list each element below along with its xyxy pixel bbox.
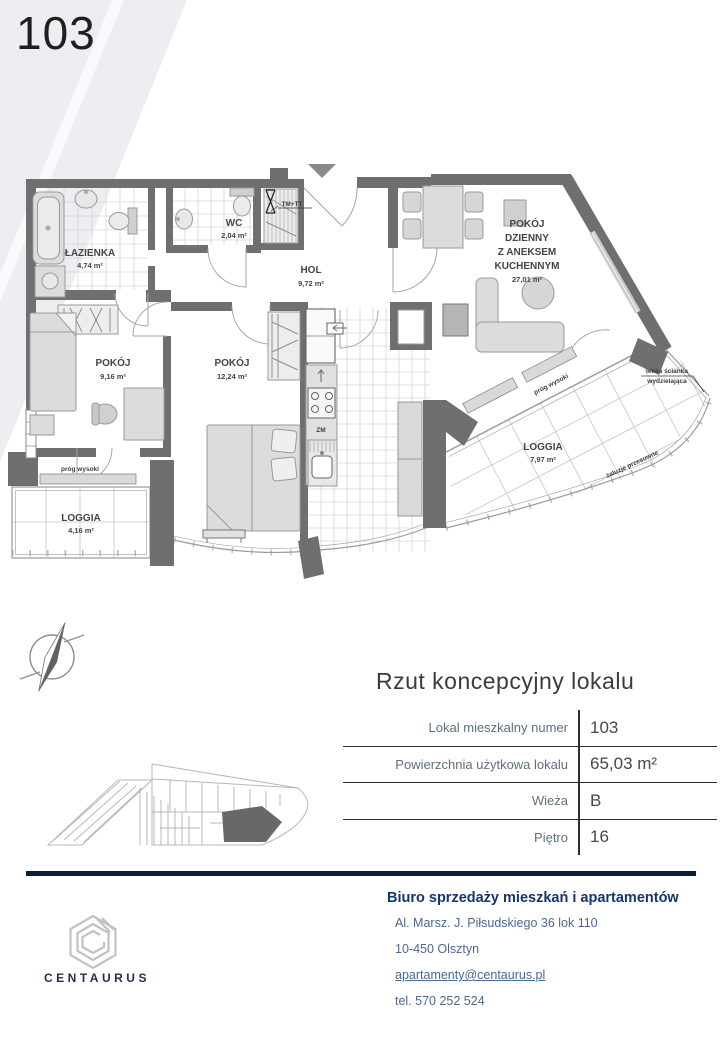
annotation-dishwasher: ZM [316, 427, 325, 434]
loggia-bench [203, 530, 245, 543]
details-table: Lokal mieszkalny numer 103 Powierzchnia … [343, 710, 717, 855]
room-area-loggia-b: 7,97 m² [530, 455, 556, 464]
room-area-living: 27,01 m² [512, 275, 543, 284]
table-row: Lokal mieszkalny numer 103 [343, 710, 717, 746]
table-row: Piętro 16 [343, 819, 717, 856]
desk-room-a [92, 388, 164, 440]
room-area-room-a: 9,16 m² [100, 372, 126, 381]
annotation-partition-1: lekka ścianka [646, 368, 688, 375]
details-title: Rzut koncepcyjny lokalu [376, 668, 706, 695]
centaurus-logo-icon [64, 912, 124, 972]
phone-number: tel. 570 252 524 [395, 994, 707, 1008]
room-label-loggia-b: LOGGIA [523, 442, 562, 453]
row-label: Powierzchnia użytkowa lokalu [343, 757, 578, 772]
room-label-bathroom: ŁAZIENKA [65, 248, 116, 259]
building-location-map [40, 748, 330, 873]
room-area-wc: 2,04 m² [221, 231, 247, 240]
brochure-page: 103 [0, 0, 720, 1040]
annotation-threshold-left: próg wysoki [61, 466, 99, 473]
bed-room-a [30, 313, 76, 435]
contact-block: Biuro sprzedaży mieszkań i apartamentów … [387, 890, 707, 1020]
row-label: Piętro [343, 830, 578, 845]
email-link[interactable]: apartamenty@centaurus.pl [395, 968, 545, 982]
wardrobe-room-b [268, 312, 300, 380]
brand-name: CENTAURUS [44, 971, 164, 985]
row-label: Wieża [343, 793, 578, 808]
room-label-living-2: DZIENNY [505, 233, 549, 244]
room-label-room-b: POKÓJ [214, 356, 249, 369]
washing-machine [35, 266, 65, 297]
room-label-wc: WC [226, 218, 243, 229]
room-area-loggia-a: 4,16 m² [68, 526, 94, 535]
room-label-living-1: POKÓJ [509, 217, 544, 230]
sales-office-title: Biuro sprzedaży mieszkań i apartamentów [387, 890, 707, 906]
room-label-living-4: KUCHENNYM [495, 261, 560, 272]
room-area-hall: 9,72 m² [298, 279, 324, 288]
bathtub [33, 192, 64, 264]
entrance-arrow [308, 164, 336, 178]
table-row: Wieża B [343, 782, 717, 819]
kitchen-units [306, 309, 347, 486]
floor-plan: ŁAZIENKA 4,74 m² WC 2,04 m² HOL 9,72 m² … [0, 0, 720, 720]
row-value: 103 [578, 710, 717, 746]
bathroom-sink [75, 190, 97, 208]
wc-sink [176, 209, 193, 229]
table-row: Powierzchnia użytkowa lokalu 65,03 m² [343, 746, 717, 783]
room-label-loggia-a: LOGGIA [61, 513, 100, 524]
annotation-partition-2: wydzielająca [646, 378, 687, 385]
address-line-2: 10-450 Olsztyn [395, 942, 707, 956]
room-label-hall: HOL [300, 265, 321, 276]
technical-shaft [264, 189, 298, 243]
room-area-room-b: 12,24 m² [217, 372, 248, 381]
bed-room-b [207, 425, 300, 531]
room-area-bathroom: 4,74 m² [77, 261, 103, 270]
row-label: Lokal mieszkalny numer [343, 720, 578, 735]
row-value: 65,03 m² [578, 747, 717, 783]
compass-north-icon [20, 620, 84, 694]
room-label-living-3: Z ANEKSEM [498, 247, 557, 258]
unit-location-marker [222, 806, 282, 842]
footer-divider [26, 871, 696, 876]
annotation-shaft: TM+TT [281, 201, 302, 208]
address-line-1: Al. Marsz. J. Piłsudskiego 36 lok 110 [395, 916, 707, 930]
row-value: 16 [578, 820, 717, 856]
room-label-room-a: POKÓJ [95, 356, 130, 369]
row-value: B [578, 783, 717, 819]
